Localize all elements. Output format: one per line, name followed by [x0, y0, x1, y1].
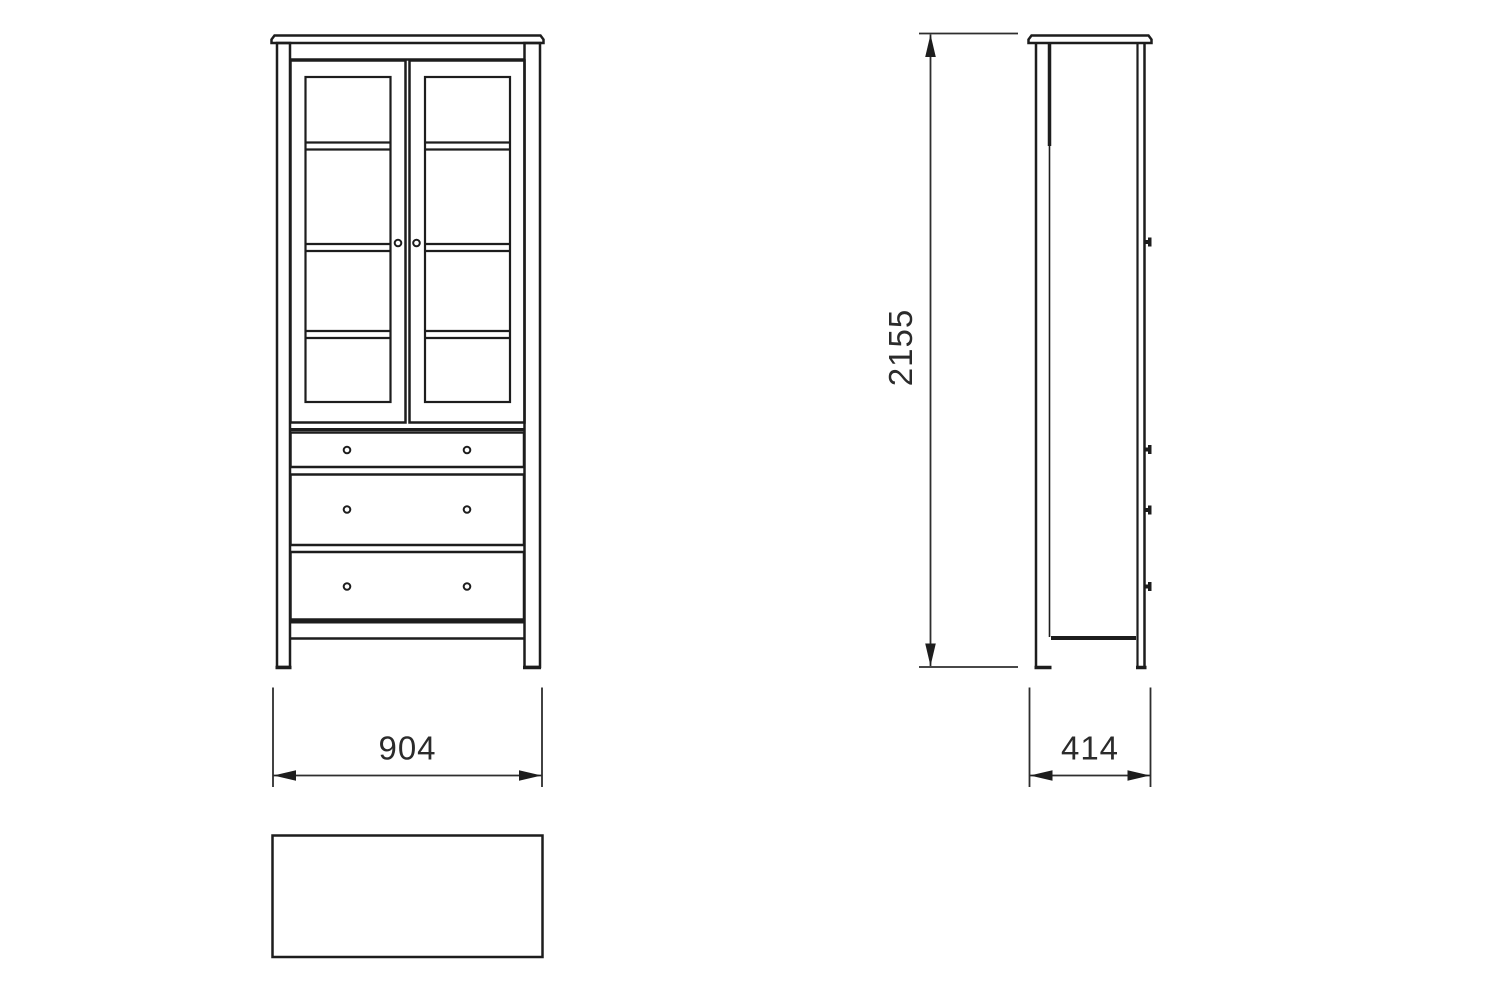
right-door-glass-pane: [425, 77, 510, 402]
front-left-stile: [277, 43, 290, 667]
top-view-outline: [273, 836, 543, 958]
depth-dimension: 414: [1030, 688, 1151, 788]
left-door-shelves: [306, 143, 391, 339]
side-door-knob: [1146, 238, 1152, 247]
arrowhead-down-icon: [925, 644, 936, 667]
depth-dimension-label: 414: [1061, 730, 1119, 767]
side-view: [1029, 36, 1152, 668]
drawer-2-knob-left: [344, 506, 351, 513]
arrowhead-right-icon: [1128, 770, 1151, 781]
top-view: [273, 836, 543, 958]
side-drawer-2-knob: [1146, 506, 1152, 515]
right-door-knob: [413, 240, 420, 247]
arrowhead-up-icon: [925, 35, 936, 58]
front-cap: [272, 36, 544, 44]
drawer-1-knob-right: [464, 447, 471, 454]
side-drawer-1-knob: [1146, 445, 1152, 454]
drawer-2-knob-right: [464, 506, 471, 513]
side-cap: [1029, 36, 1152, 44]
side-drawer-3-knob: [1146, 582, 1152, 591]
width-dimension: 904: [273, 688, 542, 788]
left-door-knob: [395, 240, 402, 247]
right-door-shelves: [425, 143, 510, 339]
drawer-2: [291, 475, 525, 546]
height-dimension-label: 2155: [882, 309, 919, 386]
right-door-frame: [410, 61, 525, 423]
arrowhead-right-icon: [519, 770, 542, 781]
drawer-3-knob-right: [464, 583, 471, 590]
drawer-1-knob-left: [344, 447, 351, 454]
left-door-frame: [291, 61, 406, 423]
left-door-glass-pane: [306, 77, 391, 402]
arrowhead-left-icon: [274, 770, 297, 781]
drawer-3-knob-left: [344, 583, 351, 590]
height-dimension: 2155: [882, 34, 1018, 668]
technical-drawing-svg: 904 2155 414: [0, 0, 1500, 1000]
drawing-canvas: 904 2155 414: [0, 0, 1500, 1000]
width-dimension-label: 904: [378, 730, 436, 767]
arrowhead-left-icon: [1030, 770, 1053, 781]
front-right-stile: [525, 43, 541, 667]
drawer-3: [291, 552, 525, 620]
front-view: [272, 36, 544, 668]
drawer-1: [291, 433, 525, 468]
